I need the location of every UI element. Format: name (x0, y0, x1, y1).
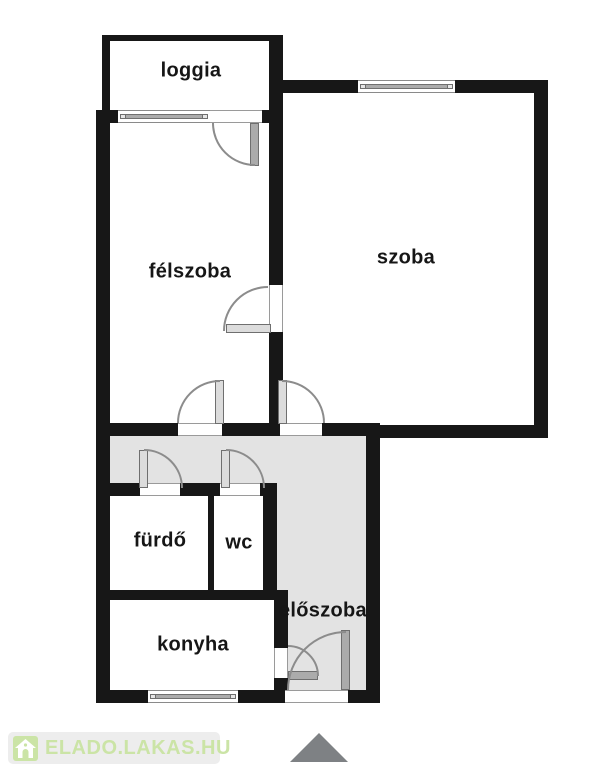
house-icon (13, 736, 38, 761)
wall-loggia-top (102, 35, 283, 41)
szoba-door-arc (282, 381, 324, 423)
wall-loggia-bottom-left (110, 110, 118, 123)
room-label-eloszoba: előszoba (279, 600, 367, 623)
site-name-text: ELADO.LAKAS.HU (45, 737, 231, 760)
wall-szoba-top-left (269, 80, 358, 93)
felszoba-door-arc (178, 381, 220, 423)
north-triangle-icon (290, 733, 348, 762)
wall-szoba-bottom (366, 425, 534, 438)
wall-loggia-left (102, 35, 110, 110)
balcony-door-leaf (250, 123, 259, 166)
kitchen-door-threshold (274, 648, 288, 678)
balcony-door-threshold (210, 110, 262, 123)
szoba-door-threshold (280, 423, 322, 436)
room-label-konyha: konyha (157, 634, 229, 657)
szoba-window (358, 80, 455, 93)
wall-bath-divider (208, 496, 214, 590)
wall-wc-right (263, 496, 277, 590)
wall-left (96, 110, 110, 703)
window-glass-bar (360, 84, 453, 89)
window-glass-bar (150, 694, 236, 699)
room-label-szoba: szoba (377, 247, 435, 270)
wall-divider-upper (269, 35, 283, 285)
balcony-door-arc (213, 123, 255, 165)
wall-bath-top-2 (180, 483, 220, 496)
room-label-furdo: fürdő (134, 530, 187, 553)
wall-loggia-bottom-right (262, 110, 269, 123)
felszoba-door-leaf (215, 380, 224, 424)
window-glass-bar (120, 114, 208, 119)
wall-hall-top-2 (222, 423, 280, 436)
entrance-door-leaf (341, 630, 350, 690)
wall-bottom-3 (348, 690, 380, 703)
wall-hall-top-1 (96, 423, 178, 436)
szoba-door-leaf (278, 380, 287, 424)
felszoba-door-threshold (178, 423, 222, 436)
wall-bottom-2 (238, 690, 285, 703)
kitchen-window (148, 690, 238, 703)
floorplan-canvas: loggia félszoba szoba fürdő wc konyha el… (0, 0, 616, 768)
loggia-window (118, 110, 210, 123)
wall-bath-top-3 (260, 483, 277, 496)
room-label-wc: wc (225, 532, 252, 555)
wall-szoba-right (534, 80, 548, 438)
bathroom-door-leaf (139, 450, 148, 488)
entrance-door-threshold (285, 690, 348, 703)
site-logo-badge: ELADO.LAKAS.HU (8, 732, 220, 764)
wall-kitchen-top (96, 590, 288, 600)
wall-bath-top-1 (110, 483, 140, 496)
wall-corridor-right (366, 425, 380, 690)
wc-door-leaf (221, 450, 230, 488)
room-label-felszoba: félszoba (149, 261, 231, 284)
room-connect-door-threshold (269, 285, 283, 332)
room-label-loggia: loggia (161, 60, 222, 83)
wall-bottom-1 (96, 690, 148, 703)
room-connect-door-leaf (226, 324, 271, 333)
kitchen-door-leaf (288, 671, 318, 680)
